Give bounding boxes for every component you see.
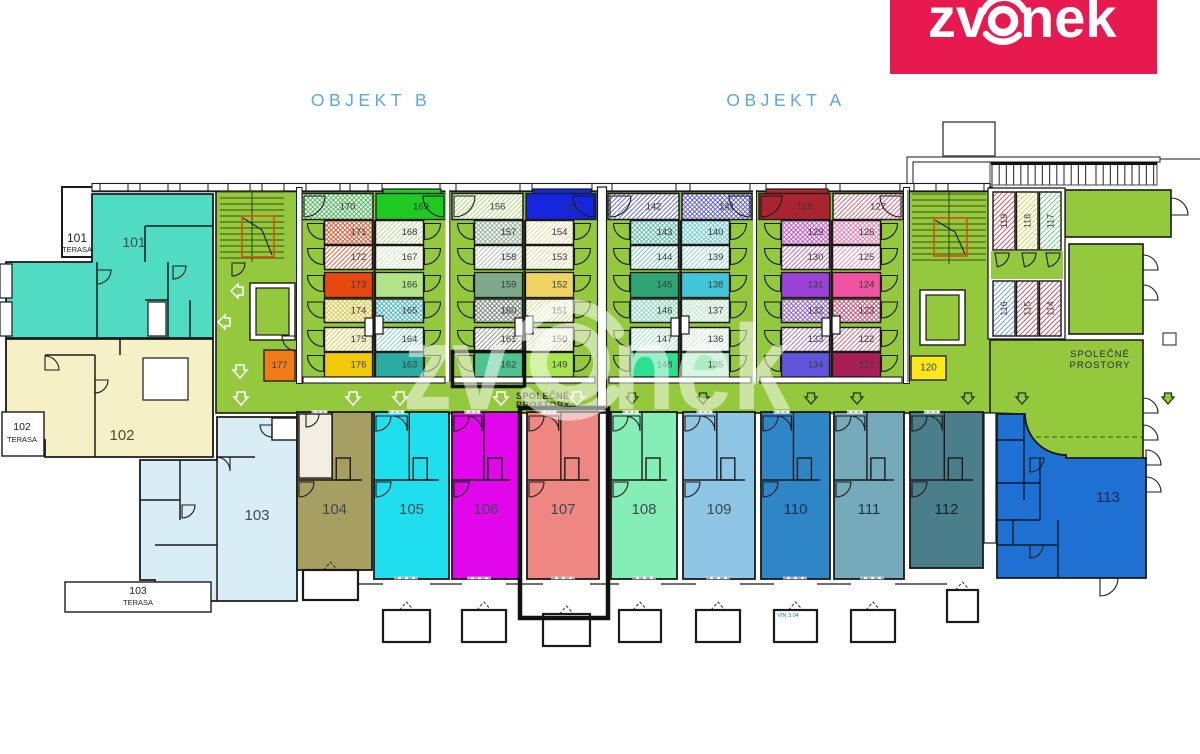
svg-text:128: 128 bbox=[797, 202, 813, 213]
svg-text:133: 133 bbox=[808, 334, 824, 345]
svg-text:158: 158 bbox=[501, 252, 517, 263]
svg-text:TERASA: TERASA bbox=[123, 598, 153, 607]
svg-text:121: 121 bbox=[859, 359, 875, 370]
svg-text:SPOLEČNÉ: SPOLEČNÉ bbox=[1070, 349, 1130, 360]
svg-text:131: 131 bbox=[808, 280, 824, 291]
svg-text:152: 152 bbox=[552, 280, 568, 291]
svg-text:116: 116 bbox=[999, 301, 1009, 315]
svg-text:103: 103 bbox=[129, 585, 147, 597]
svg-text:119: 119 bbox=[999, 214, 1009, 228]
svg-text:112: 112 bbox=[935, 501, 959, 518]
svg-text:167: 167 bbox=[402, 252, 418, 263]
svg-text:zv: zv bbox=[403, 299, 507, 435]
svg-text:VIN 3.04: VIN 3.04 bbox=[777, 613, 798, 619]
svg-text:149: 149 bbox=[552, 359, 568, 370]
svg-text:105: 105 bbox=[399, 501, 424, 518]
svg-text:123: 123 bbox=[859, 305, 875, 316]
svg-text:172: 172 bbox=[351, 252, 367, 263]
svg-text:157: 157 bbox=[501, 227, 517, 238]
svg-text:nek: nek bbox=[612, 299, 791, 435]
svg-text:TERASA: TERASA bbox=[62, 245, 92, 254]
svg-text:118: 118 bbox=[1022, 214, 1032, 228]
svg-text:zv: zv bbox=[928, 0, 987, 49]
svg-text:110: 110 bbox=[784, 501, 808, 518]
svg-text:OBJEKT B: OBJEKT B bbox=[311, 90, 431, 110]
svg-text:168: 168 bbox=[402, 227, 418, 238]
svg-text:173: 173 bbox=[351, 280, 367, 291]
svg-text:101: 101 bbox=[67, 231, 87, 245]
svg-text:107: 107 bbox=[550, 501, 575, 518]
svg-text:108: 108 bbox=[631, 501, 656, 518]
svg-text:170: 170 bbox=[340, 202, 356, 213]
svg-text:144: 144 bbox=[657, 252, 673, 263]
svg-text:nek: nek bbox=[1020, 0, 1117, 49]
svg-text:103: 103 bbox=[244, 507, 269, 524]
svg-text:120: 120 bbox=[920, 363, 937, 374]
svg-text:113: 113 bbox=[1096, 489, 1120, 506]
svg-text:102: 102 bbox=[109, 427, 134, 444]
svg-text:124: 124 bbox=[859, 280, 875, 291]
svg-text:156: 156 bbox=[490, 202, 506, 213]
svg-text:138: 138 bbox=[708, 280, 724, 291]
svg-text:166: 166 bbox=[402, 280, 418, 291]
svg-text:153: 153 bbox=[552, 252, 568, 263]
svg-text:159: 159 bbox=[501, 280, 517, 291]
svg-text:177: 177 bbox=[272, 360, 288, 371]
svg-text:104: 104 bbox=[322, 501, 347, 518]
svg-text:117: 117 bbox=[1045, 214, 1055, 228]
svg-text:134: 134 bbox=[808, 359, 824, 370]
svg-text:122: 122 bbox=[859, 334, 875, 345]
svg-text:106: 106 bbox=[473, 501, 498, 518]
svg-text:115: 115 bbox=[1022, 301, 1032, 315]
svg-text:114: 114 bbox=[1045, 301, 1055, 315]
svg-text:101: 101 bbox=[122, 234, 146, 250]
svg-text:OBJEKT A: OBJEKT A bbox=[726, 90, 845, 110]
svg-text:154: 154 bbox=[552, 227, 568, 238]
svg-text:174: 174 bbox=[351, 305, 367, 316]
svg-text:126: 126 bbox=[859, 227, 875, 238]
svg-text:109: 109 bbox=[706, 501, 731, 518]
svg-text:171: 171 bbox=[351, 227, 367, 238]
svg-text:139: 139 bbox=[708, 252, 724, 263]
svg-text:102: 102 bbox=[13, 421, 31, 433]
svg-text:143: 143 bbox=[657, 227, 673, 238]
svg-text:142: 142 bbox=[646, 202, 662, 213]
svg-text:130: 130 bbox=[808, 252, 824, 263]
svg-text:125: 125 bbox=[859, 252, 875, 263]
svg-text:145: 145 bbox=[657, 280, 673, 291]
svg-text:129: 129 bbox=[808, 227, 824, 238]
svg-text:TERASA: TERASA bbox=[7, 435, 37, 444]
svg-text:111: 111 bbox=[858, 501, 881, 518]
svg-text:140: 140 bbox=[708, 227, 724, 238]
svg-text:132: 132 bbox=[808, 305, 824, 316]
svg-text:175: 175 bbox=[351, 334, 367, 345]
svg-text:176: 176 bbox=[351, 359, 367, 370]
svg-text:PROSTORY: PROSTORY bbox=[1070, 360, 1131, 371]
